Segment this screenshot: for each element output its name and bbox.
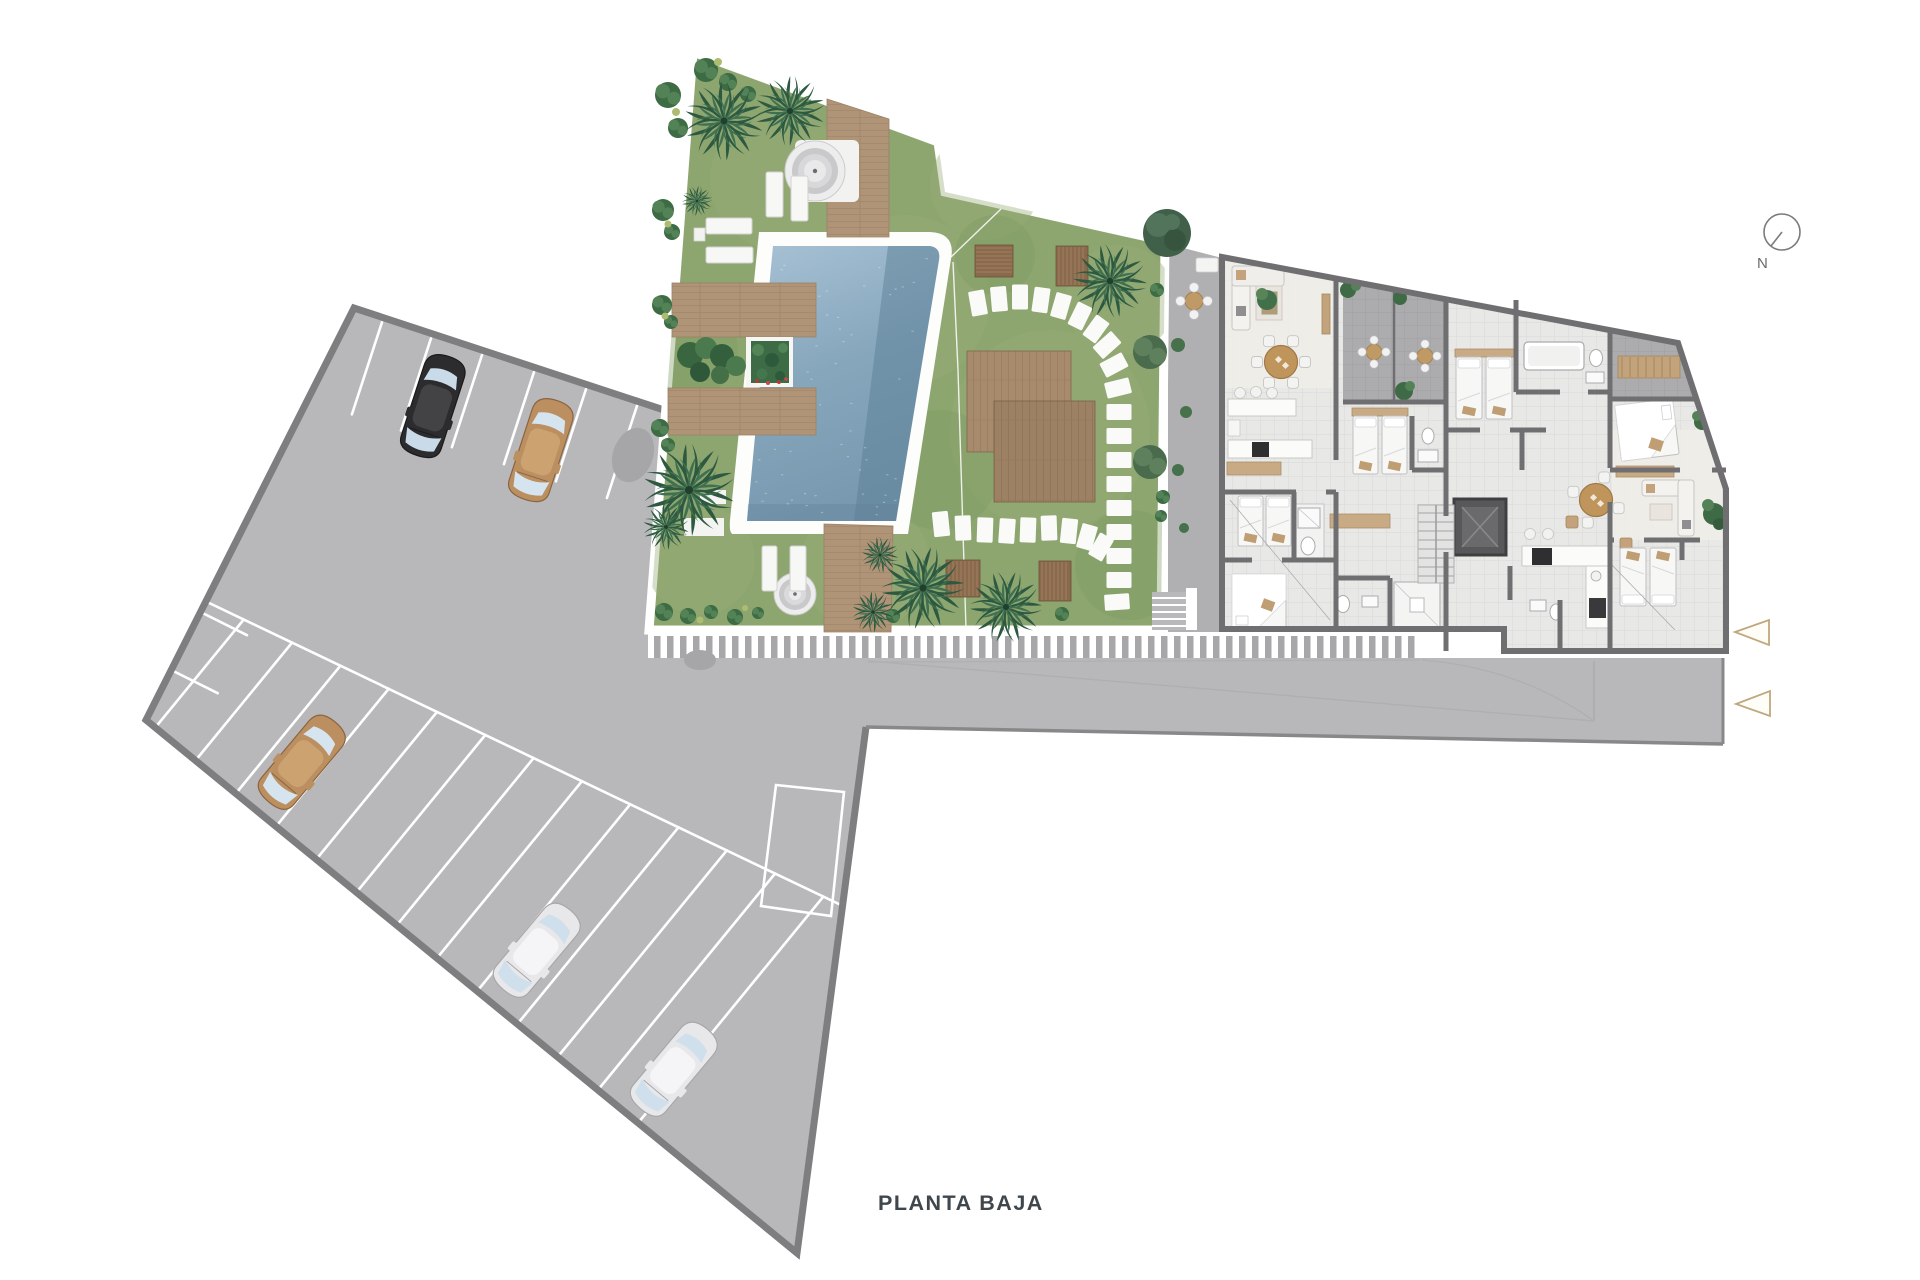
svg-text:N: N	[1757, 255, 1768, 272]
svg-text:PLANTA BAJA: PLANTA BAJA	[878, 1191, 1044, 1215]
